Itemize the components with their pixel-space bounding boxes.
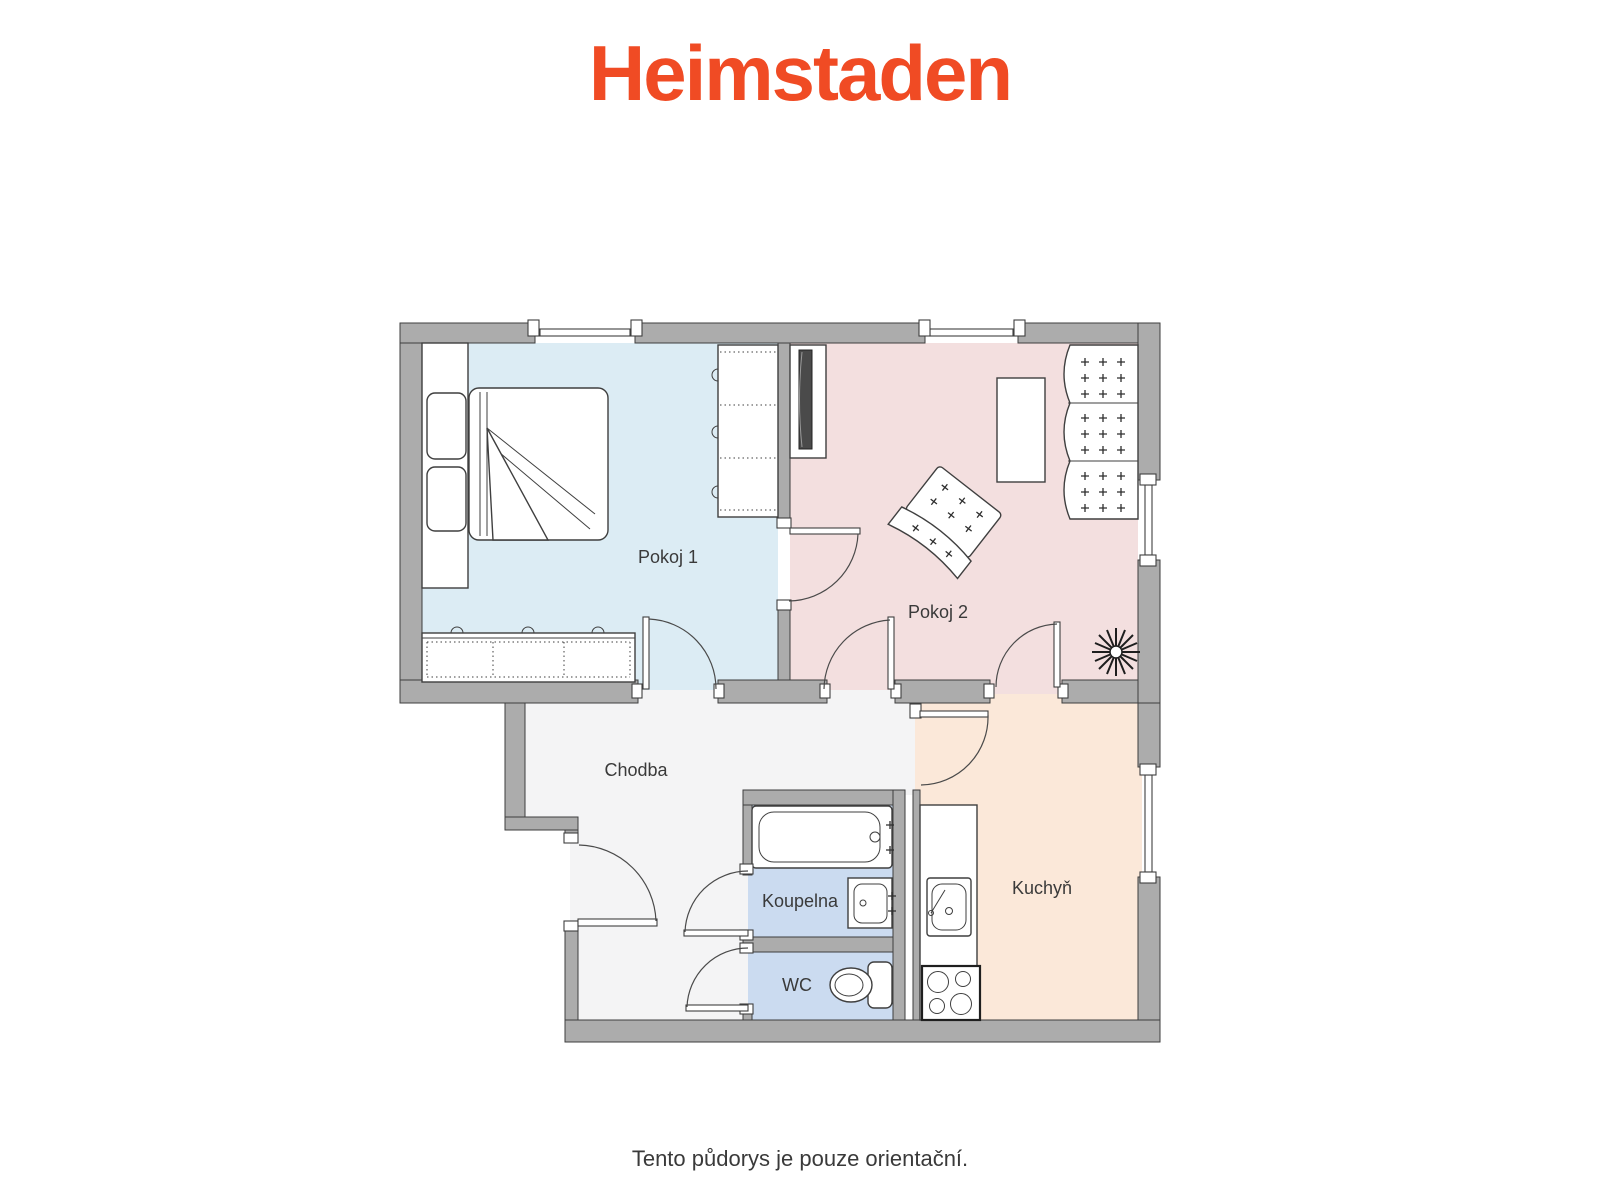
stove [922, 966, 980, 1020]
wardrobe-column-left [422, 343, 468, 588]
window-pokoj2-top [919, 320, 1025, 336]
window-kuchyn-right [1140, 764, 1156, 883]
bathroom-sink [848, 878, 896, 928]
window-pokoj2-right [1140, 474, 1156, 566]
room-label-koupelna: Koupelna [762, 891, 839, 911]
page: Heimstaden [0, 0, 1600, 1200]
floor-plan: Pokoj 1 Pokoj 2 Chodba Koupelna WC Kuchy… [0, 0, 1600, 1200]
tv-stand [790, 345, 826, 458]
bed [469, 388, 608, 540]
wardrobe-tall [712, 345, 778, 517]
sofa [1064, 345, 1138, 519]
disclaimer-text: Tento půdorys je pouze orientační. [0, 1146, 1600, 1172]
room-label-pokoj2: Pokoj 2 [908, 602, 968, 622]
room-label-wc: WC [782, 975, 812, 995]
kitchen-sink [927, 878, 971, 936]
room-label-kuchyn: Kuchyň [1012, 878, 1072, 898]
room-label-chodba: Chodba [604, 760, 668, 780]
window-pokoj1-top [528, 320, 642, 336]
bathtub [752, 806, 894, 868]
plant-icon [1092, 628, 1140, 676]
coffee-table [997, 378, 1045, 482]
room-label-pokoj1: Pokoj 1 [638, 547, 698, 567]
dresser [422, 627, 635, 682]
